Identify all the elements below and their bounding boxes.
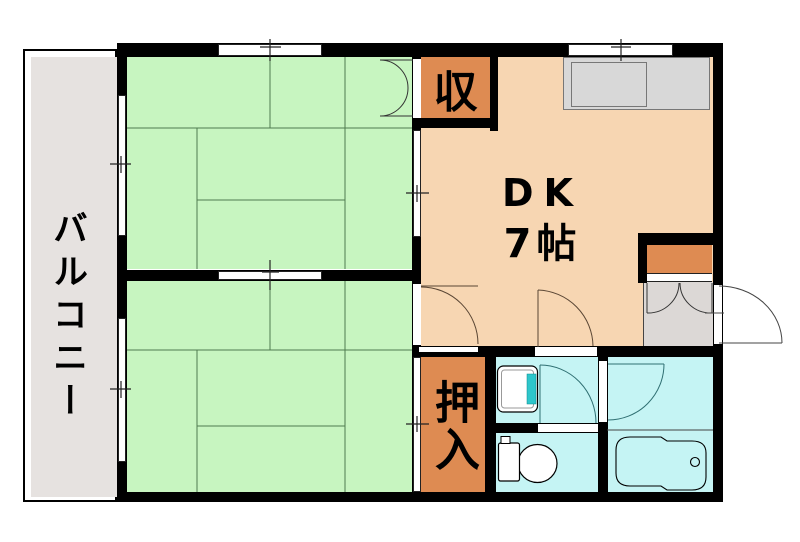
- toilet-room-floor: [496, 433, 598, 492]
- door-threshold: [419, 347, 478, 352]
- kitchen-sink: [571, 62, 647, 107]
- dk-label: DK: [455, 174, 630, 212]
- shoe-cabinet-opening: [647, 273, 712, 282]
- closet-fusuma-door: [413, 357, 421, 492]
- storage-doorway: [413, 59, 421, 118]
- shoe-cabinet: [647, 245, 712, 273]
- storage-label: 収: [421, 57, 490, 118]
- entrance-floor: [643, 282, 713, 346]
- sliding-door-tatami-dk: [413, 130, 421, 237]
- wall-cabinet-top: [638, 233, 723, 245]
- doorway-tatami-dk: [413, 284, 421, 345]
- balcony-label: バルコニー: [40, 152, 94, 482]
- washroom-floor: [496, 357, 598, 423]
- dk-size-label: 7帖: [455, 218, 630, 262]
- wall-cabinet-left: [638, 233, 647, 283]
- window-top-tatami: [218, 44, 322, 56]
- bathroom-floor: [607, 357, 713, 492]
- washroom-doorway: [535, 347, 597, 356]
- tatami-room-lower-floor: [127, 281, 412, 492]
- wall-storage-right: [490, 43, 498, 131]
- entrance-doorway: [714, 285, 722, 344]
- wall-right: [713, 43, 723, 502]
- window-balcony-lower: [118, 318, 126, 462]
- closet-label: 押入: [421, 360, 485, 492]
- bathroom-doorway: [599, 361, 607, 422]
- window-balcony-upper: [118, 95, 126, 236]
- tatami-room-upper-floor: [127, 57, 412, 269]
- floor-plan: バルコニー 収 DK 7帖 押入: [0, 0, 800, 542]
- toilet-doorway: [538, 424, 598, 432]
- sliding-door-between-tatami: [218, 271, 322, 280]
- wall-bottom: [117, 492, 723, 502]
- wall-storage-bottom: [412, 118, 498, 128]
- window-top-kitchen: [568, 44, 673, 56]
